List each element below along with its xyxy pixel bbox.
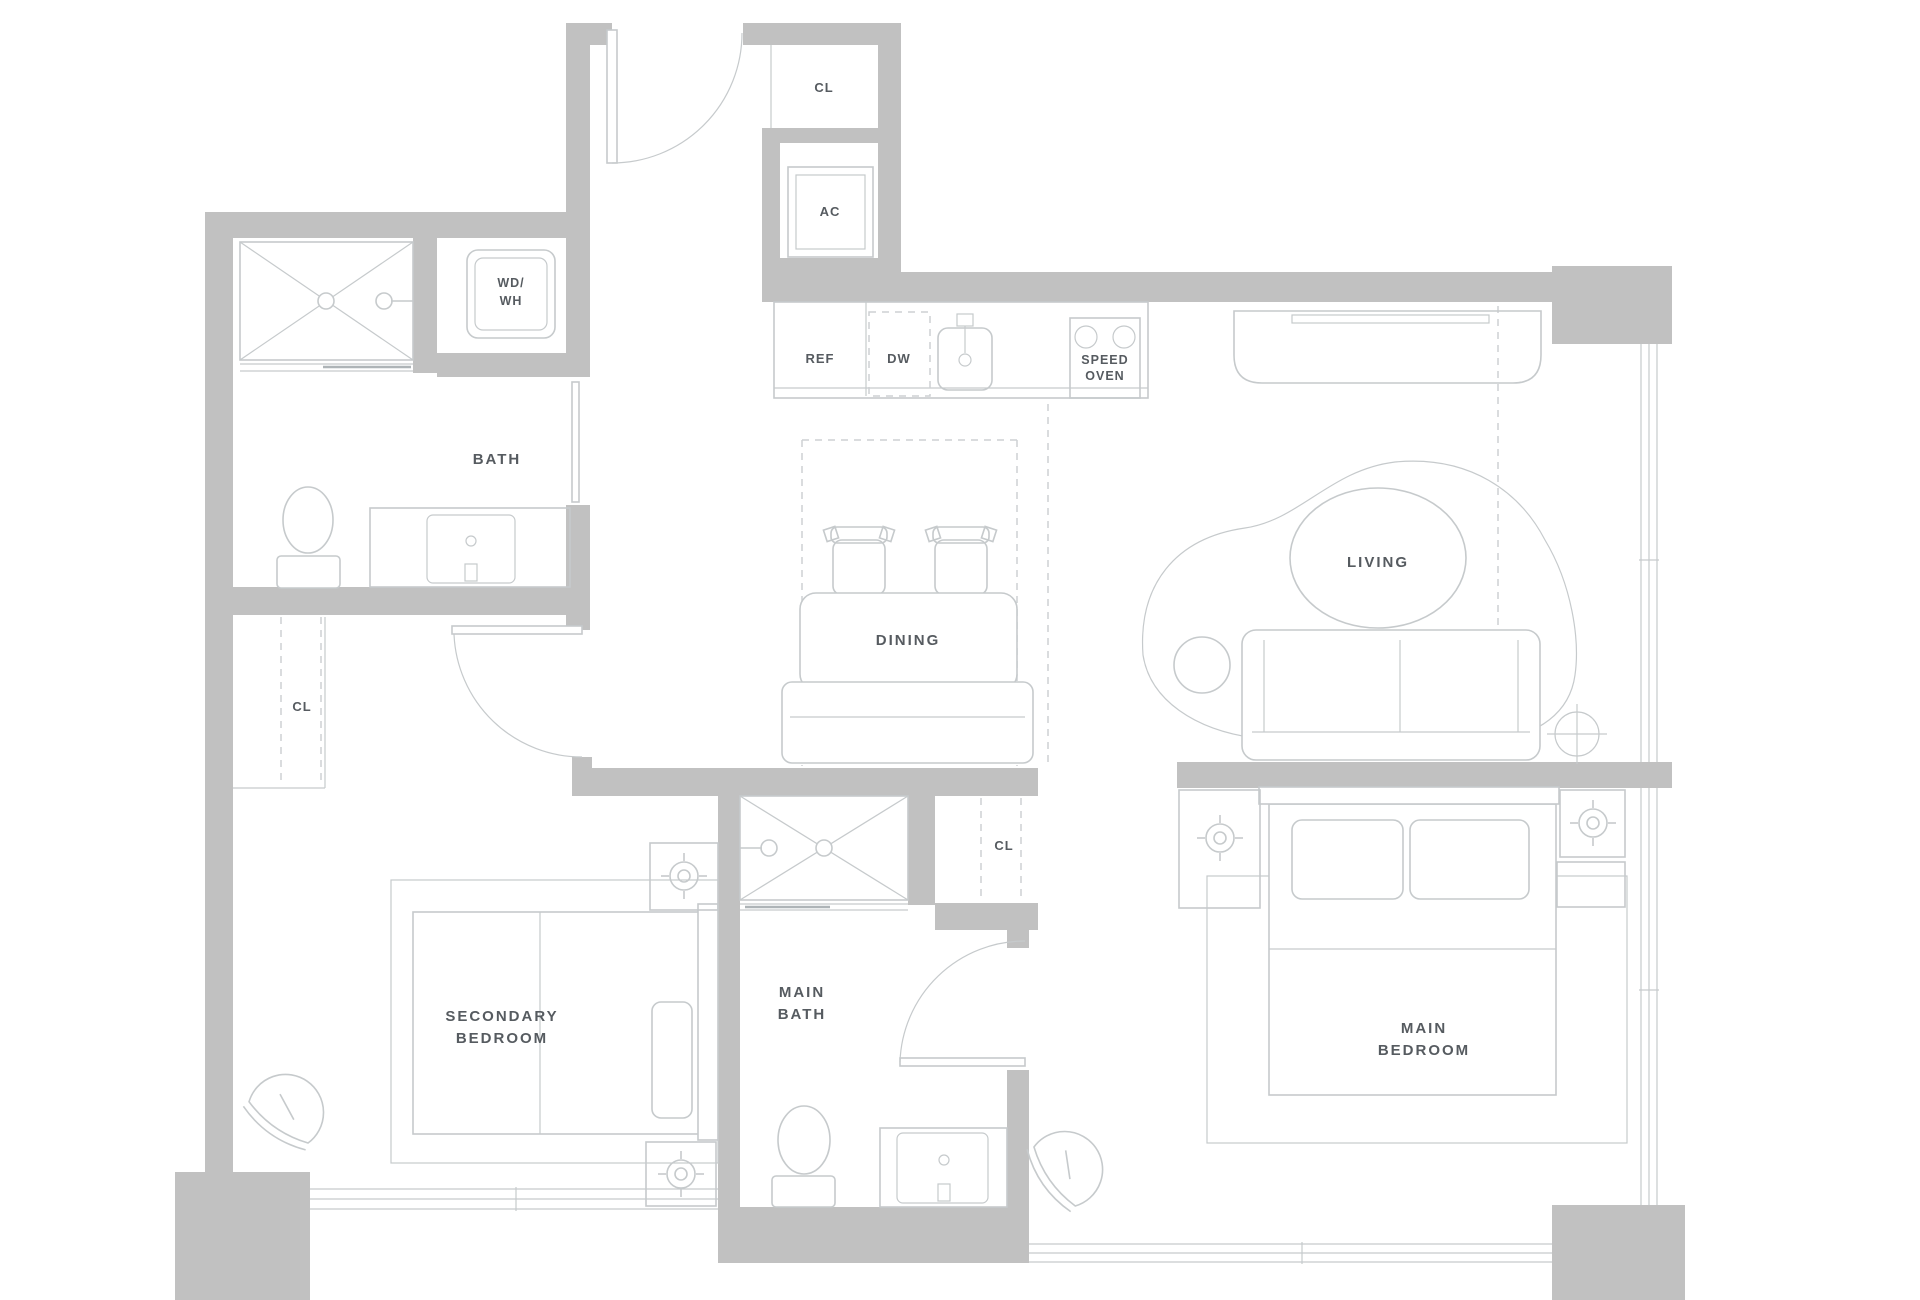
living-set <box>1143 311 1607 764</box>
kitchen-sink-symbol <box>938 314 992 390</box>
label-washer-line1: WD/ <box>497 276 524 290</box>
label-dining: DINING <box>876 632 941 649</box>
side-table <box>1174 637 1230 693</box>
label-main-bath-line2: BATH <box>778 1006 827 1023</box>
dining-bench <box>782 682 1033 763</box>
label-ac: AC <box>820 204 841 219</box>
tv-console <box>1234 311 1541 383</box>
wall-segment <box>1007 1070 1029 1207</box>
label-dishwasher: DW <box>887 351 911 366</box>
label-bath: BATH <box>473 451 522 468</box>
toilet-symbol <box>772 1106 835 1207</box>
wall-segment <box>878 23 901 278</box>
floor-lamp-symbol <box>1547 704 1607 764</box>
label-fridge: REF <box>806 351 835 366</box>
nightstand <box>1179 790 1260 908</box>
wall-segment <box>175 1172 310 1300</box>
label-oven-line2: OVEN <box>1085 369 1124 383</box>
dining-chair <box>823 526 894 595</box>
shower-symbol <box>740 796 908 910</box>
label-hall-closet: CL <box>292 699 311 714</box>
label-main-bedroom-line1: MAIN <box>1401 1020 1447 1037</box>
vanity-sink-symbol <box>370 508 570 587</box>
wall-segment <box>205 212 233 1175</box>
wall-segment <box>233 587 588 615</box>
wall-segment <box>437 353 568 377</box>
dining-chair <box>925 526 996 595</box>
label-main-closet: CL <box>994 838 1013 853</box>
wall-segment <box>1552 266 1672 344</box>
label-living: LIVING <box>1347 554 1409 571</box>
bedroom-suite-door <box>452 626 582 757</box>
wall-segment <box>935 903 1038 930</box>
nightstand <box>646 1142 716 1206</box>
wall-segment <box>205 212 568 238</box>
vanity-sink-symbol <box>880 1128 1007 1207</box>
kitchen-counter <box>774 302 1148 398</box>
wall-segment <box>718 1207 1029 1263</box>
nightstand <box>1557 790 1625 907</box>
shower-symbol <box>240 242 413 371</box>
main-bath-door <box>900 941 1025 1066</box>
label-main-bath-line1: MAIN <box>779 984 825 1001</box>
wall-segment <box>718 768 740 1207</box>
main-bath <box>740 796 1021 1207</box>
lounge-chair-symbol <box>239 1059 338 1155</box>
label-main-bedroom-line2: BEDROOM <box>1378 1042 1470 1059</box>
ceiling-light-symbol <box>658 1151 704 1197</box>
wall-segment <box>566 23 590 377</box>
label-secondary-bedroom-line1: SECONDARY <box>445 1008 558 1025</box>
toilet-symbol <box>277 487 340 588</box>
floor-plan-page: CL AC WD/ WH REF DW SPEED OVEN BATH CL D… <box>0 0 1920 1300</box>
wall-segment <box>743 23 901 45</box>
floor-plan-drawing: CL AC WD/ WH REF DW SPEED OVEN BATH CL D… <box>0 0 1920 1300</box>
label-washer-line2: WH <box>500 294 523 308</box>
hall-bath-pocket-door <box>572 382 579 502</box>
label-oven-line1: SPEED <box>1081 353 1128 367</box>
wall-segment <box>1177 762 1672 788</box>
ceiling-light-symbol <box>1197 815 1243 861</box>
label-entry-closet: CL <box>814 80 833 95</box>
nightstand <box>650 843 718 910</box>
wall-segment <box>1007 930 1029 948</box>
window-bottom-right <box>1029 1242 1552 1264</box>
ceiling-light-symbol <box>661 853 707 899</box>
window-bottom-left <box>310 1187 718 1211</box>
main-bedroom <box>1021 787 1627 1216</box>
label-secondary-bedroom-line2: BEDROOM <box>456 1030 548 1047</box>
wall-segment <box>572 768 1038 796</box>
entry-door <box>607 30 742 163</box>
wall-segment <box>908 796 935 905</box>
wall-segment <box>762 272 1552 302</box>
lounge-chair-symbol <box>1021 1117 1117 1216</box>
ceiling-light-symbol <box>1570 800 1616 846</box>
wall-segment <box>762 128 780 275</box>
wall-segment <box>413 233 437 373</box>
sofa <box>1242 630 1540 760</box>
wall-segment <box>1552 1205 1685 1300</box>
